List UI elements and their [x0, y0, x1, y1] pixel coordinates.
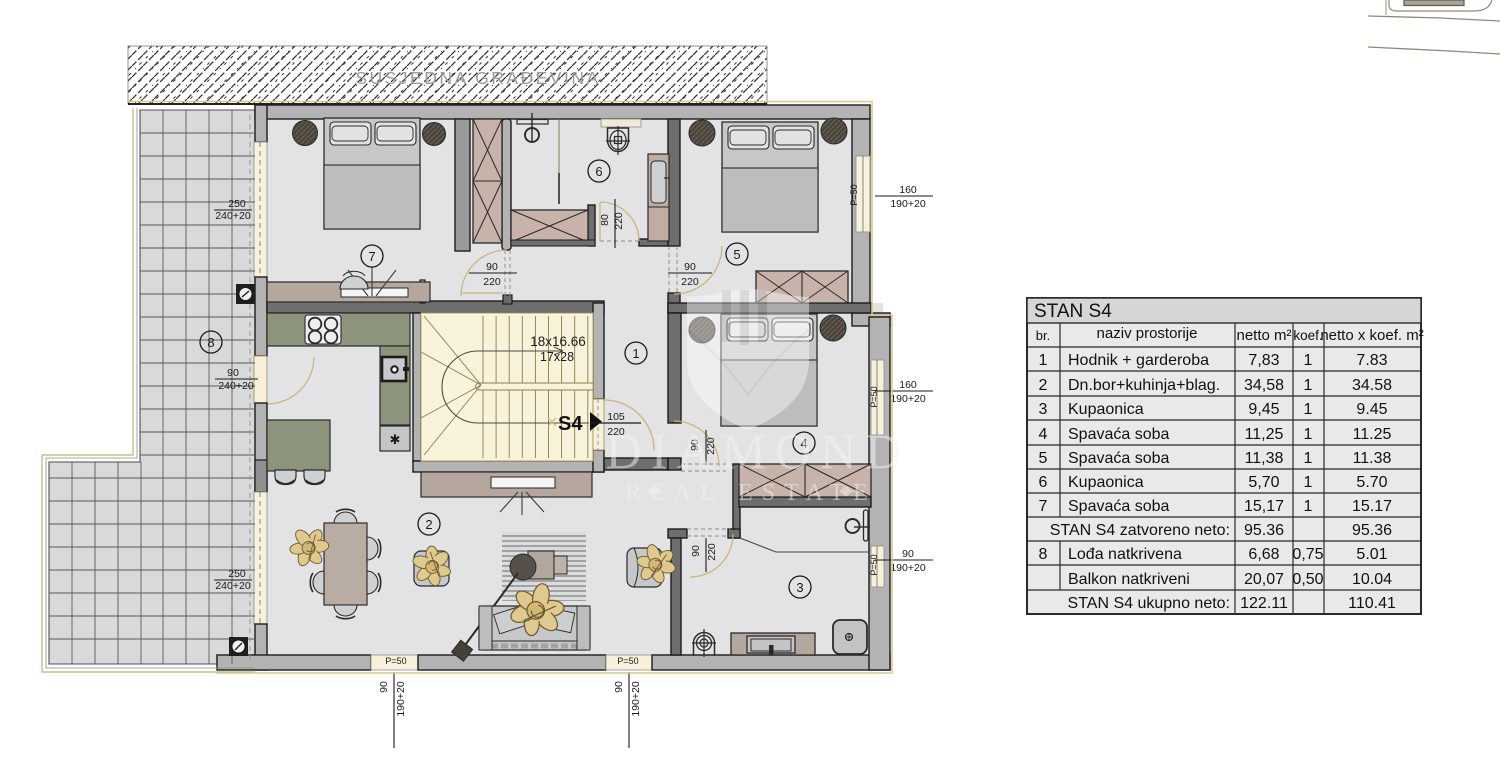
svg-text:8: 8 — [1039, 546, 1048, 563]
svg-text:Kupaonica: Kupaonica — [1068, 401, 1144, 418]
svg-text:naziv prostorije: naziv prostorije — [1097, 325, 1198, 342]
svg-text:STAN S4: STAN S4 — [1034, 301, 1112, 322]
svg-text:STAN S4 ukupno neto:: STAN S4 ukupno neto: — [1068, 595, 1230, 612]
svg-text:90: 90 — [684, 261, 696, 273]
svg-text:6,68: 6,68 — [1248, 546, 1279, 563]
svg-text:5.70: 5.70 — [1356, 474, 1387, 491]
svg-text:9.45: 9.45 — [1356, 401, 1387, 418]
svg-text:250: 250 — [228, 568, 246, 580]
svg-text:Spavaća soba: Spavaća soba — [1068, 426, 1170, 443]
svg-text:34.58: 34.58 — [1352, 377, 1392, 394]
svg-text:P=50: P=50 — [869, 554, 879, 575]
svg-text:95.36: 95.36 — [1352, 522, 1392, 539]
svg-text:0,75: 0,75 — [1292, 546, 1323, 563]
svg-text:15.17: 15.17 — [1352, 498, 1392, 515]
svg-text:7: 7 — [1039, 498, 1048, 515]
svg-text:1: 1 — [1304, 352, 1313, 369]
svg-text:S4: S4 — [558, 413, 583, 435]
svg-text:18x16.66: 18x16.66 — [530, 334, 586, 349]
svg-text:1: 1 — [1304, 426, 1313, 443]
svg-text:20,07: 20,07 — [1244, 571, 1284, 588]
svg-text:220: 220 — [613, 212, 625, 230]
svg-text:STAN S4 zatvoreno neto:: STAN S4 zatvoreno neto: — [1050, 522, 1230, 539]
svg-text:190+20: 190+20 — [395, 681, 407, 716]
svg-text:br.: br. — [1036, 328, 1050, 343]
svg-text:7.83: 7.83 — [1356, 352, 1387, 369]
svg-text:SUSJEDNA GRAĐEVINA: SUSJEDNA GRAĐEVINA — [355, 68, 600, 88]
svg-text:220: 220 — [483, 276, 501, 288]
svg-text:220: 220 — [681, 276, 699, 288]
svg-text:8: 8 — [207, 335, 214, 350]
svg-text:160: 160 — [899, 379, 917, 391]
svg-text:3: 3 — [796, 580, 803, 595]
svg-text:240+20: 240+20 — [218, 380, 253, 392]
svg-text:160: 160 — [899, 184, 917, 196]
svg-text:1: 1 — [1304, 401, 1313, 418]
svg-text:2: 2 — [1039, 377, 1048, 394]
svg-text:Spavaća soba: Spavaća soba — [1068, 450, 1170, 467]
svg-text:6: 6 — [1039, 474, 1048, 491]
svg-text:7,83: 7,83 — [1248, 352, 1279, 369]
svg-text:P=50: P=50 — [869, 386, 879, 407]
svg-text:10.04: 10.04 — [1352, 571, 1392, 588]
svg-text:Spavaća soba: Spavaća soba — [1068, 498, 1170, 515]
svg-text:240+20: 240+20 — [215, 580, 250, 592]
svg-text:netto m²: netto m² — [1236, 327, 1291, 344]
svg-text:90: 90 — [227, 367, 239, 379]
svg-text:190+20: 190+20 — [630, 681, 642, 716]
svg-text:90: 90 — [613, 681, 625, 693]
svg-text:1: 1 — [632, 346, 639, 361]
svg-text:190+20: 190+20 — [890, 393, 925, 405]
svg-text:90: 90 — [902, 548, 914, 560]
svg-text:250: 250 — [228, 198, 246, 210]
svg-text:122.11: 122.11 — [1240, 595, 1288, 612]
svg-text:240+20: 240+20 — [215, 210, 250, 222]
svg-text:34,58: 34,58 — [1244, 377, 1284, 394]
svg-text:Balkon natkriveni: Balkon natkriveni — [1068, 571, 1190, 588]
svg-text:Dn.bor+kuhinja+blag.: Dn.bor+kuhinja+blag. — [1068, 377, 1220, 394]
svg-text:11,38: 11,38 — [1245, 450, 1284, 467]
svg-text:4: 4 — [1039, 426, 1048, 443]
svg-text:✱: ✱ — [390, 432, 401, 447]
svg-text:P=50: P=50 — [617, 656, 638, 666]
svg-text:3: 3 — [1039, 401, 1048, 418]
svg-text:9,45: 9,45 — [1248, 401, 1279, 418]
svg-text:110.41: 110.41 — [1348, 595, 1396, 612]
svg-text:2: 2 — [425, 517, 432, 532]
svg-text:1: 1 — [1039, 352, 1048, 369]
svg-text:105: 105 — [607, 411, 625, 423]
svg-text:5.01: 5.01 — [1356, 546, 1387, 563]
svg-text:1: 1 — [1304, 498, 1313, 515]
svg-text:220: 220 — [706, 543, 718, 561]
svg-text:DIAMOND: DIAMOND — [606, 423, 911, 479]
svg-text:15,17: 15,17 — [1244, 498, 1284, 515]
svg-text:Hodnik + garderoba: Hodnik + garderoba — [1068, 352, 1209, 369]
svg-text:REAL ESTATE: REAL ESTATE — [625, 480, 877, 506]
svg-text:netto x koef. m²: netto x koef. m² — [1320, 327, 1423, 344]
svg-text:11.38: 11.38 — [1353, 450, 1392, 467]
svg-text:5: 5 — [1039, 450, 1048, 467]
svg-text:190+20: 190+20 — [890, 562, 925, 574]
svg-text:1: 1 — [1304, 474, 1313, 491]
svg-text:6: 6 — [595, 164, 602, 179]
svg-text:11,25: 11,25 — [1245, 426, 1284, 443]
svg-text:1: 1 — [1304, 450, 1313, 467]
svg-text:90: 90 — [486, 261, 498, 273]
svg-text:1: 1 — [1304, 377, 1313, 394]
svg-text:Kupaonica: Kupaonica — [1068, 474, 1144, 491]
svg-text:11.25: 11.25 — [1353, 426, 1392, 443]
svg-text:Lođa natkrivena: Lođa natkrivena — [1068, 546, 1182, 563]
svg-text:0,50: 0,50 — [1292, 571, 1323, 588]
svg-text:190+20: 190+20 — [890, 198, 925, 210]
svg-text:80: 80 — [599, 214, 611, 226]
svg-text:95.36: 95.36 — [1244, 522, 1284, 539]
svg-text:koef.: koef. — [1293, 328, 1322, 343]
svg-text:90: 90 — [378, 681, 390, 693]
svg-text:7: 7 — [368, 249, 375, 264]
svg-text:90: 90 — [690, 545, 702, 557]
svg-text:5: 5 — [733, 247, 740, 262]
svg-text:P=50: P=50 — [385, 656, 406, 666]
svg-text:17x28: 17x28 — [540, 350, 574, 364]
svg-text:P=50: P=50 — [849, 184, 859, 205]
svg-text:5,70: 5,70 — [1248, 474, 1279, 491]
